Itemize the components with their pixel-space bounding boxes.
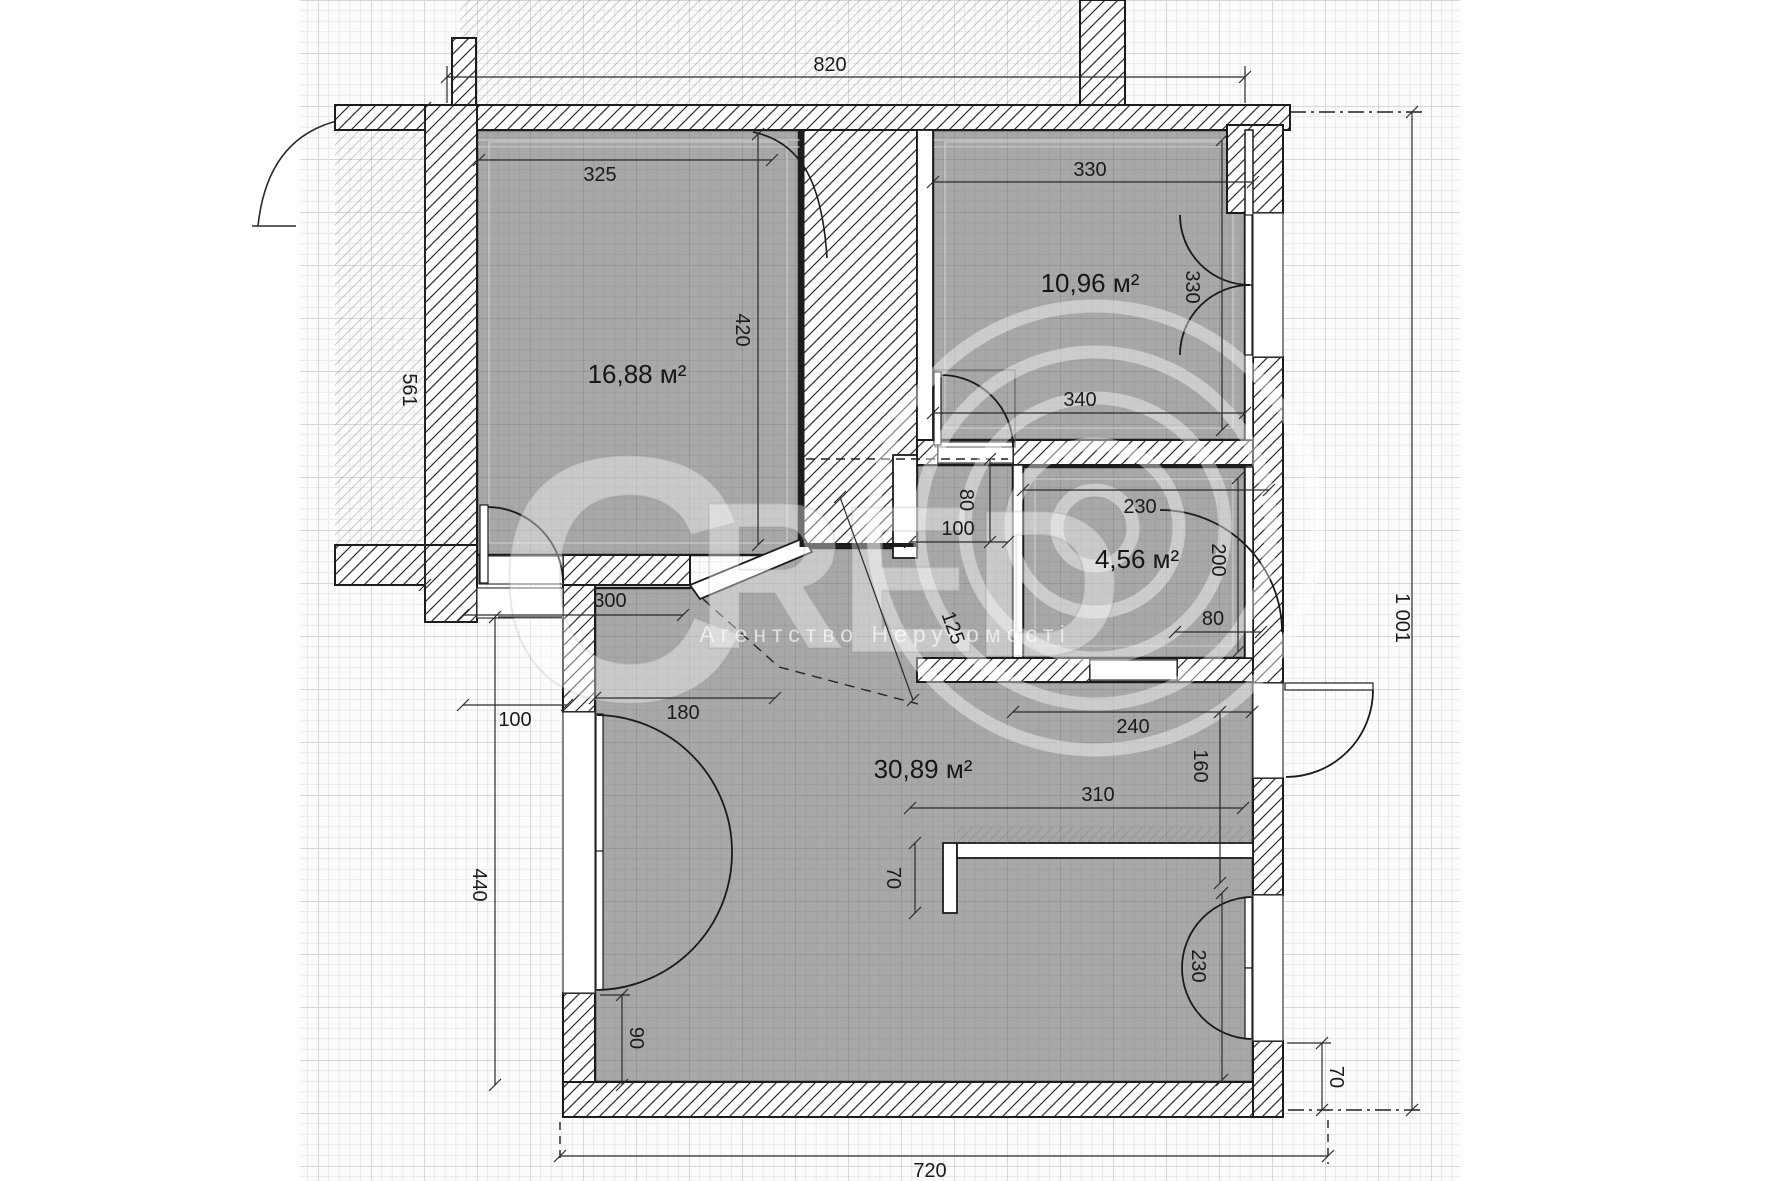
dim-label-living-left: 180: [666, 702, 699, 724]
wall-stub-top-right: [1080, 0, 1125, 105]
entrance-door-leaf: [1285, 683, 1373, 690]
dim-label-bottom-width: 720: [913, 1160, 946, 1181]
watermark-letter-d: D: [972, 466, 1124, 701]
dim-label-top-width: 820: [813, 54, 846, 76]
dim-label-left-height: 561: [398, 373, 420, 406]
wall-stub-top-left: [452, 38, 476, 108]
wall-right-corner: [1227, 125, 1283, 213]
wall-left: [425, 105, 477, 555]
dim-label-r1-top: 325: [583, 164, 616, 186]
dim-label-bath-top: 230: [1123, 496, 1156, 518]
wall-left-return: [335, 545, 425, 585]
opening-entrance: [1253, 683, 1283, 778]
dim-label-right-height: 1 001: [1391, 593, 1413, 643]
dim-label-r2-bottom: 340: [1063, 389, 1096, 411]
opening-balcony-living: [1253, 895, 1283, 1041]
room-label-bathroom: 4,56 м²: [1095, 544, 1180, 574]
room-label-top-left: 16,88 м²: [588, 359, 687, 389]
opening-balcony-room2: [1253, 213, 1283, 357]
dim-label-hall-width: 240: [1116, 716, 1149, 738]
door-leaf-room1: [480, 505, 488, 583]
floor-plan: C R E D Агентство Нерухомості: [0, 0, 1772, 1181]
dim-label-door-offset: 90: [625, 1027, 647, 1049]
dim-label-hall-h: 80: [955, 489, 977, 511]
dim-label-bath-door: 80: [1202, 608, 1224, 630]
watermark-subtitle: Агентство Нерухомості: [699, 621, 1070, 647]
dim-label-r2-top: 330: [1073, 159, 1106, 181]
floor-plan-drawing: C R E D Агентство Нерухомості: [0, 0, 1772, 1181]
wall-bottom: [563, 1082, 1283, 1117]
dim-label-hall-w: 100: [941, 518, 974, 540]
dim-label-balc-door: 230: [1187, 949, 1209, 982]
dim-label-r1-right: 420: [731, 313, 753, 346]
dim-label-r1-door: 300: [593, 590, 626, 612]
dim-label-left-offset: 100: [498, 709, 531, 731]
dim-label-niche-w: 310: [1081, 784, 1114, 806]
dim-label-out-offset: 70: [1325, 1066, 1347, 1088]
room-label-living: 30,89 м²: [874, 754, 973, 784]
dim-label-niche-step: 70: [882, 867, 904, 889]
dim-label-left-lower: 440: [468, 868, 490, 901]
dim-label-bath-right: 200: [1207, 543, 1229, 576]
partition-stub: [943, 843, 957, 913]
dim-label-r2-door: 330: [1181, 270, 1203, 303]
room-label-top-right: 10,96 м²: [1041, 268, 1140, 298]
wall-top: [335, 105, 1290, 130]
dim-label-vest-h: 160: [1189, 749, 1211, 782]
watermark-letter-r: R: [695, 458, 847, 693]
partition-wall: [957, 843, 1253, 858]
